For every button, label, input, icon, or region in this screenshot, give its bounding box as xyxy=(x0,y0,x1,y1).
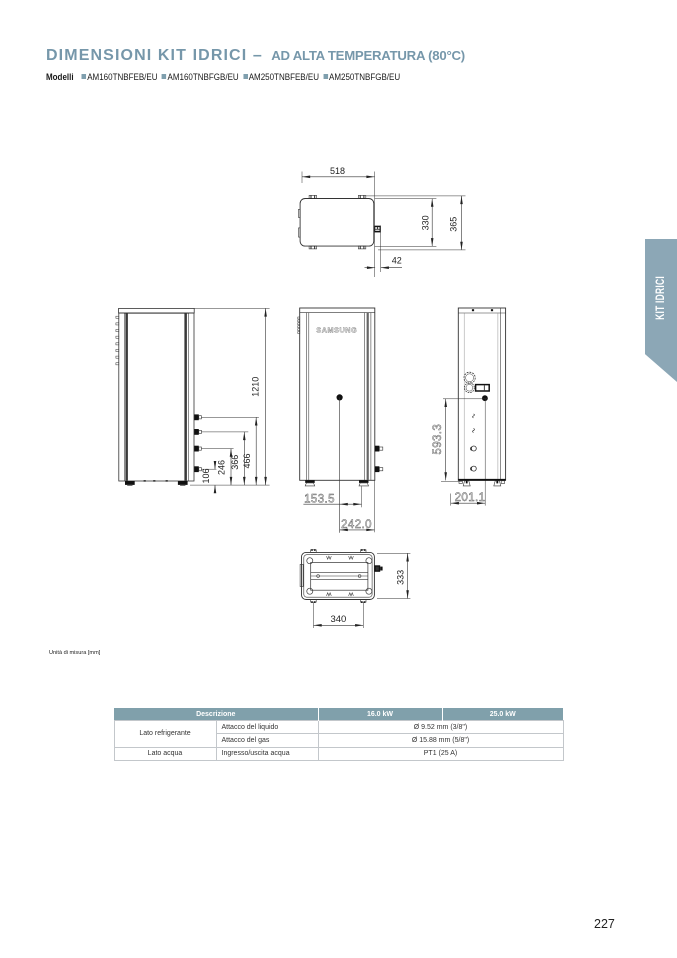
svg-text:1210: 1210 xyxy=(251,377,261,397)
svg-text:SAMSUNG: SAMSUNG xyxy=(316,325,357,334)
svg-text:153.5: 153.5 xyxy=(304,493,335,505)
svg-text:366: 366 xyxy=(230,455,240,470)
svg-text:246: 246 xyxy=(217,460,227,475)
svg-text:330: 330 xyxy=(420,215,430,230)
svg-text:518: 518 xyxy=(330,166,345,176)
svg-text:466: 466 xyxy=(242,453,252,468)
svg-text:333: 333 xyxy=(396,570,406,585)
svg-text:242.0: 242.0 xyxy=(341,519,372,531)
svg-text:340: 340 xyxy=(330,614,346,625)
svg-text:365: 365 xyxy=(449,217,459,232)
svg-text:201.1: 201.1 xyxy=(455,492,486,504)
svg-text:593.3: 593.3 xyxy=(432,424,444,455)
svg-text:106: 106 xyxy=(201,468,211,483)
svg-text:42: 42 xyxy=(392,256,402,266)
